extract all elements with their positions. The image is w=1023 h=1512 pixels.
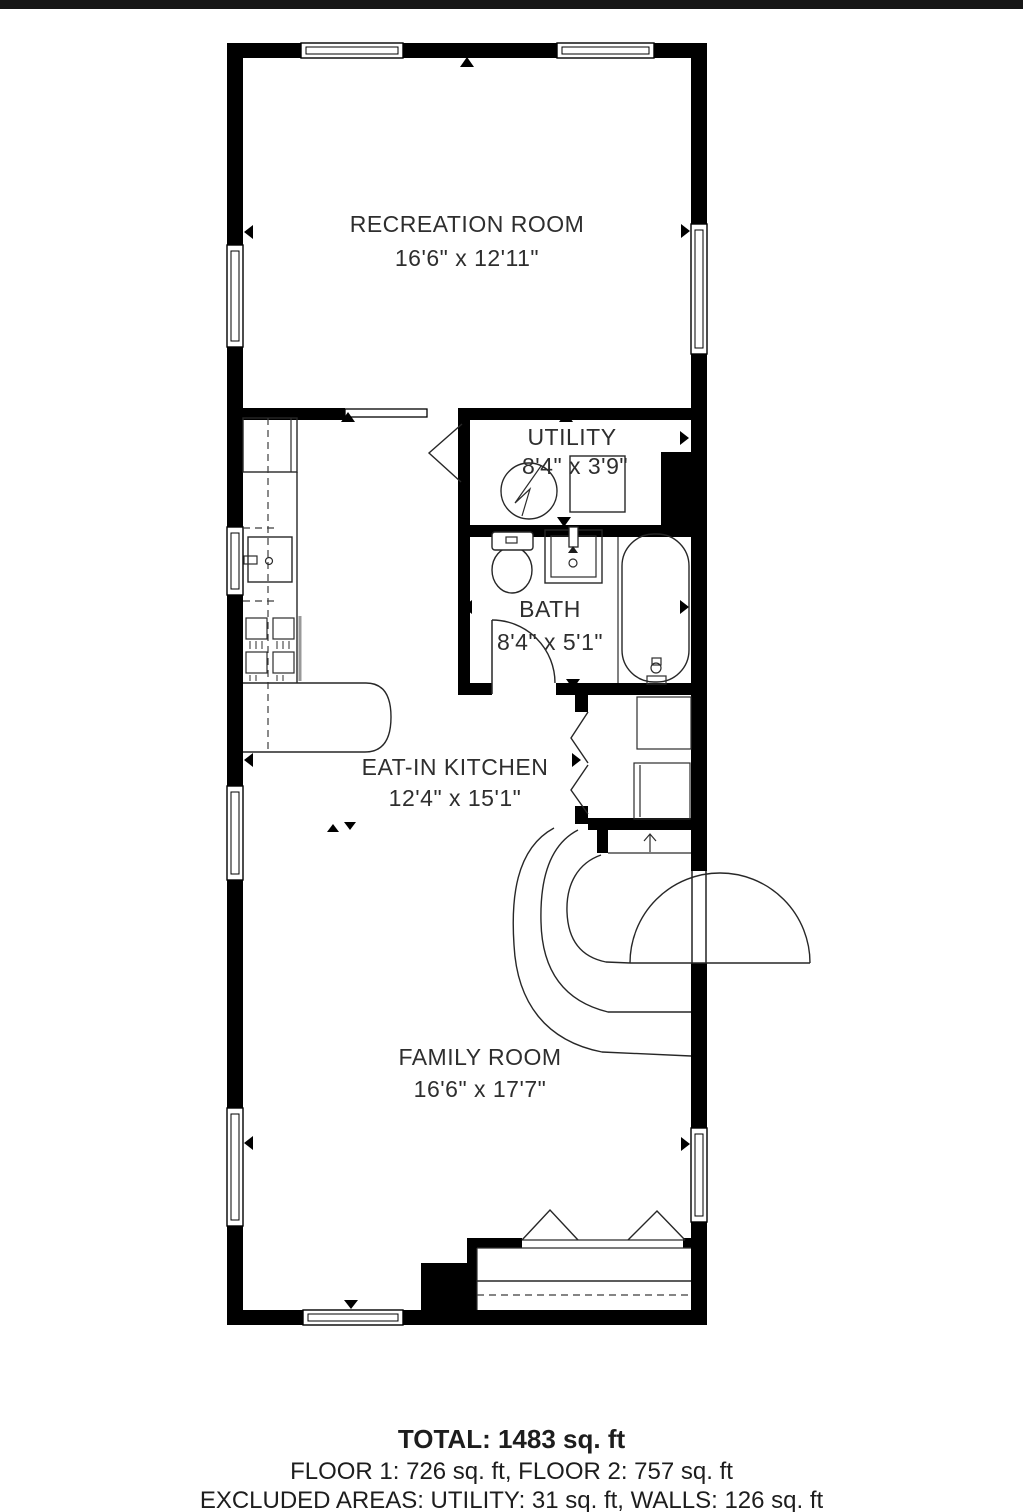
bifold-door-utility [429,424,462,482]
kitchen-dimensions: 12'4" x 15'1" [389,785,522,811]
window-top-1 [301,43,403,58]
arrow-utility-right [680,431,689,445]
wall-utility-top [470,408,691,420]
kitchen-fixtures [243,418,391,752]
bathtub [622,534,689,684]
arrow-kitchen-left [244,753,253,767]
porch [477,1210,691,1310]
stair-tread-2 [541,830,691,1012]
closet-pillar-bottom [575,806,588,824]
excluded-areas-text: EXCLUDED AREAS: UTILITY: 31 sq. ft, WALL… [0,1487,1023,1512]
folding-door-right [628,1211,685,1240]
curved-staircase [513,828,691,1056]
utility-label: UTILITY [527,424,616,450]
stove [246,616,300,681]
closet-shelf-top [637,697,691,749]
entry-doorway-gap [691,871,707,963]
kitchen-label: EAT-IN KITCHEN [362,754,549,780]
arrow-bottom-window [344,1300,358,1309]
landing-stub [597,818,608,853]
total-area-text: TOTAL: 1483 sq. ft [0,1424,1023,1455]
closet-pillar-top [575,695,588,712]
top-bar [0,0,1023,9]
recreation-room-dimensions: 16'6" x 12'11" [395,245,539,271]
floor-plan-drawing: RECREATION ROOM 16'6" x 12'11" UTILITY 8… [0,0,1023,1512]
bath-label: BATH [519,596,581,622]
arrow-kitchen-floor-down [344,822,356,830]
window-top-2 [557,43,654,58]
stair-tread-1 [567,855,630,963]
bath-dimensions: 8'4" x 5'1" [497,629,603,655]
floor-areas-text: FLOOR 1: 726 sq. ft, FLOOR 2: 757 sq. ft [0,1458,1023,1486]
arrow-top-wall [460,57,474,67]
window-right-family [691,1128,707,1222]
arrow-kitchen-floor-up [327,824,339,832]
arrow-closet [572,753,581,767]
wall-bottom [227,1310,707,1325]
arrow-left-recreation [244,225,253,239]
pocket-door [345,409,427,417]
window-left-family [227,1108,243,1226]
floor-plan-page: RECREATION ROOM 16'6" x 12'11" UTILITY 8… [0,0,1023,1512]
window-bottom [303,1310,403,1325]
bath-doorway-gap [492,683,556,695]
recreation-room-label: RECREATION ROOM [350,211,585,237]
kitchen-peninsula [243,683,391,752]
window-right-recreation [691,224,707,354]
closet-shelves [634,697,691,819]
closet-shelf-bottom [634,763,690,819]
arrow-right-recreation [681,224,690,238]
window-left-kitchen [227,786,243,880]
rec-doorway-gap [427,408,458,420]
stair-tread-3 [513,828,691,1056]
chimney-block [661,452,691,525]
toilet [492,532,533,593]
family-room-dimensions: 16'6" x 17'7" [414,1076,547,1102]
corner-cabinet [243,418,297,472]
folding-door-left [522,1210,578,1240]
utility-dimensions: 8'4" x 3'9" [522,453,628,479]
entry-door-swing [630,873,810,963]
porch-step-wall [421,1238,522,1310]
family-room-label: FAMILY ROOM [398,1044,561,1070]
arrow-bath-right [680,600,689,614]
window-left-kitchen-sink [227,527,243,595]
room-labels: RECREATION ROOM 16'6" x 12'11" UTILITY 8… [350,211,628,1102]
arrow-family-right [681,1137,690,1151]
vanity-sink [545,527,602,583]
wall-kitchen-bath [458,408,470,695]
window-left-recreation [227,245,243,347]
arrow-family-left [244,1136,253,1150]
